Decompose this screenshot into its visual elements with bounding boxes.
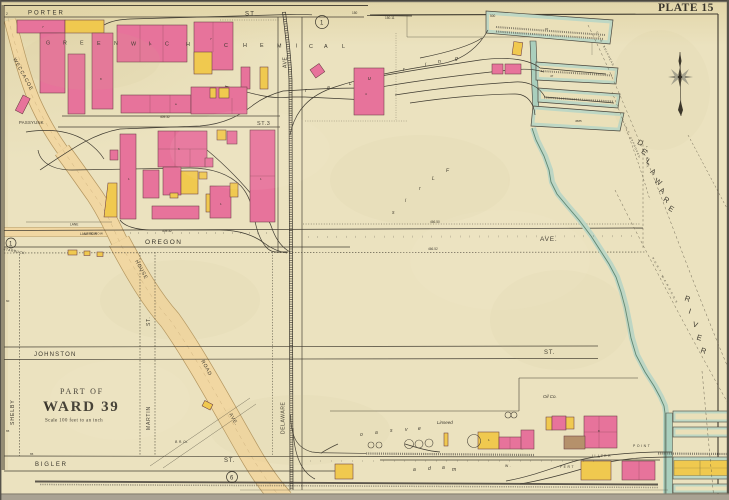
svg-text:a: a <box>442 465 445 471</box>
svg-text:L.W. MARK: L.W. MARK <box>645 146 650 169</box>
svg-text:A: A <box>324 44 328 50</box>
svg-text:H: H <box>186 42 190 48</box>
svg-text:2: 2 <box>6 12 8 16</box>
svg-text:500: 500 <box>490 14 496 18</box>
svg-text:ILIZER: ILIZER <box>592 454 612 458</box>
svg-text:L: L <box>342 44 345 50</box>
svg-text:ST.: ST. <box>224 458 235 464</box>
svg-text:d: d <box>428 466 431 472</box>
svg-text:E: E <box>260 43 264 49</box>
svg-text:a: a <box>327 85 330 91</box>
svg-text:65: 65 <box>30 452 34 456</box>
svg-text:JOHNSTON: JOHNSTON <box>34 352 77 358</box>
svg-text:OREGON: OREGON <box>145 239 182 246</box>
svg-text:H: H <box>243 43 247 49</box>
svg-text:SHELBY: SHELBY <box>10 399 16 425</box>
svg-text:n: n <box>438 59 441 65</box>
svg-text:409.32: 409.32 <box>160 115 170 119</box>
svg-text:PORTER: PORTER <box>28 11 65 17</box>
svg-text:65: 65 <box>6 429 10 433</box>
svg-text:150.11: 150.11 <box>385 16 395 20</box>
svg-text:B. R. Co.: B. R. Co. <box>175 440 188 444</box>
svg-text:POINT: POINT <box>633 444 651 448</box>
svg-text:LANE ROW: LANE ROW <box>80 232 97 236</box>
svg-text:4585: 4585 <box>575 119 582 123</box>
svg-text:m: m <box>452 467 456 473</box>
svg-text:AVE.: AVE. <box>283 55 289 68</box>
svg-text:PLATE 15: PLATE 15 <box>658 2 714 14</box>
svg-text:150: 150 <box>352 11 358 15</box>
svg-text:Linseed: Linseed <box>437 420 453 425</box>
svg-text:Oil Co.: Oil Co. <box>543 394 557 399</box>
svg-text:ST: ST <box>245 12 255 18</box>
svg-text:97: 97 <box>545 27 549 31</box>
svg-text:47: 47 <box>550 74 554 78</box>
svg-text:e: e <box>418 426 421 432</box>
svg-text:C: C <box>309 44 313 50</box>
svg-text:g: g <box>455 56 458 62</box>
svg-text:FERT: FERT <box>560 465 575 469</box>
svg-text:W.: W. <box>505 464 512 468</box>
svg-text:60: 60 <box>6 299 10 303</box>
svg-text:a: a <box>413 467 416 473</box>
svg-text:LANE: LANE <box>70 223 78 227</box>
svg-text:C: C <box>165 42 169 48</box>
svg-text:I: I <box>296 44 298 50</box>
svg-text:C: C <box>224 43 228 49</box>
svg-text:BIGLER: BIGLER <box>35 462 68 468</box>
svg-text:PASSYUNK: PASSYUNK <box>19 120 44 125</box>
svg-text:u: u <box>368 76 371 82</box>
svg-text:M: M <box>277 44 282 50</box>
svg-text:409.32: 409.32 <box>162 229 172 233</box>
